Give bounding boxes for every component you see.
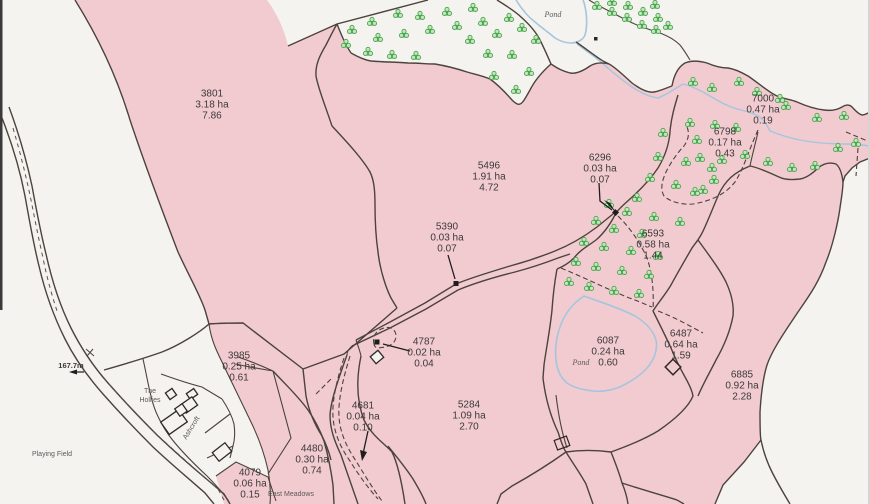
svg-text:0.43: 0.43 — [715, 149, 735, 160]
svg-text:6885: 6885 — [731, 370, 754, 381]
svg-text:7000: 7000 — [752, 94, 775, 105]
svg-text:0.15: 0.15 — [240, 490, 260, 501]
svg-text:0.04: 0.04 — [414, 359, 434, 370]
svg-text:0.61: 0.61 — [229, 373, 249, 384]
svg-text:7.86: 7.86 — [202, 111, 222, 122]
svg-text:Pond: Pond — [544, 10, 563, 19]
svg-text:2.70: 2.70 — [459, 422, 479, 433]
svg-text:East Meadows: East Meadows — [268, 491, 314, 498]
svg-text:4681: 4681 — [352, 401, 375, 412]
svg-text:6593: 6593 — [642, 229, 665, 240]
svg-text:0.02 ha: 0.02 ha — [407, 348, 441, 359]
svg-text:6296: 6296 — [589, 153, 612, 164]
svg-text:0.92 ha: 0.92 ha — [725, 381, 759, 392]
svg-text:2.28: 2.28 — [732, 392, 752, 403]
svg-text:0.60: 0.60 — [598, 358, 618, 369]
svg-text:5390: 5390 — [436, 222, 459, 233]
svg-text:Playing Field: Playing Field — [32, 451, 72, 458]
svg-text:0.03 ha: 0.03 ha — [583, 164, 617, 175]
svg-text:6487: 6487 — [670, 329, 693, 340]
svg-text:0.04 ha: 0.04 ha — [346, 412, 380, 423]
svg-text:0.47 ha: 0.47 ha — [746, 105, 780, 116]
svg-text:0.25 ha: 0.25 ha — [222, 362, 256, 373]
svg-text:3801: 3801 — [201, 89, 224, 100]
svg-text:Pond: Pond — [572, 358, 591, 367]
svg-text:6798: 6798 — [714, 127, 737, 138]
svg-text:0.19: 0.19 — [753, 116, 773, 127]
svg-text:0.17 ha: 0.17 ha — [708, 138, 742, 149]
svg-text:3985: 3985 — [228, 351, 251, 362]
svg-text:1.44: 1.44 — [643, 251, 663, 262]
svg-text:4480: 4480 — [301, 444, 324, 455]
svg-text:0.06 ha: 0.06 ha — [233, 479, 267, 490]
svg-text:0.64 ha: 0.64 ha — [664, 340, 698, 351]
svg-text:4787: 4787 — [413, 337, 436, 348]
svg-text:0.03 ha: 0.03 ha — [430, 233, 464, 244]
svg-text:5284: 5284 — [458, 400, 481, 411]
svg-text:0.07: 0.07 — [590, 175, 610, 186]
svg-text:4.72: 4.72 — [479, 183, 499, 194]
svg-text:0.10: 0.10 — [353, 423, 373, 434]
svg-text:4079: 4079 — [239, 468, 262, 479]
svg-text:0.74: 0.74 — [302, 466, 322, 477]
svg-text:0.30 ha: 0.30 ha — [295, 455, 329, 466]
svg-text:0.58 ha: 0.58 ha — [636, 240, 670, 251]
svg-text:Hollies: Hollies — [139, 397, 161, 404]
svg-text:1.59: 1.59 — [671, 351, 691, 362]
svg-text:The: The — [144, 388, 156, 395]
svg-text:1.09 ha: 1.09 ha — [452, 411, 486, 422]
svg-text:3.18 ha: 3.18 ha — [195, 100, 229, 111]
svg-text:6087: 6087 — [597, 336, 620, 347]
svg-text:0.24 ha: 0.24 ha — [591, 347, 625, 358]
svg-text:1.91 ha: 1.91 ha — [472, 172, 506, 183]
svg-text:0.07: 0.07 — [437, 244, 457, 255]
svg-text:5496: 5496 — [478, 161, 501, 172]
svg-text:167.7m: 167.7m — [58, 361, 84, 370]
